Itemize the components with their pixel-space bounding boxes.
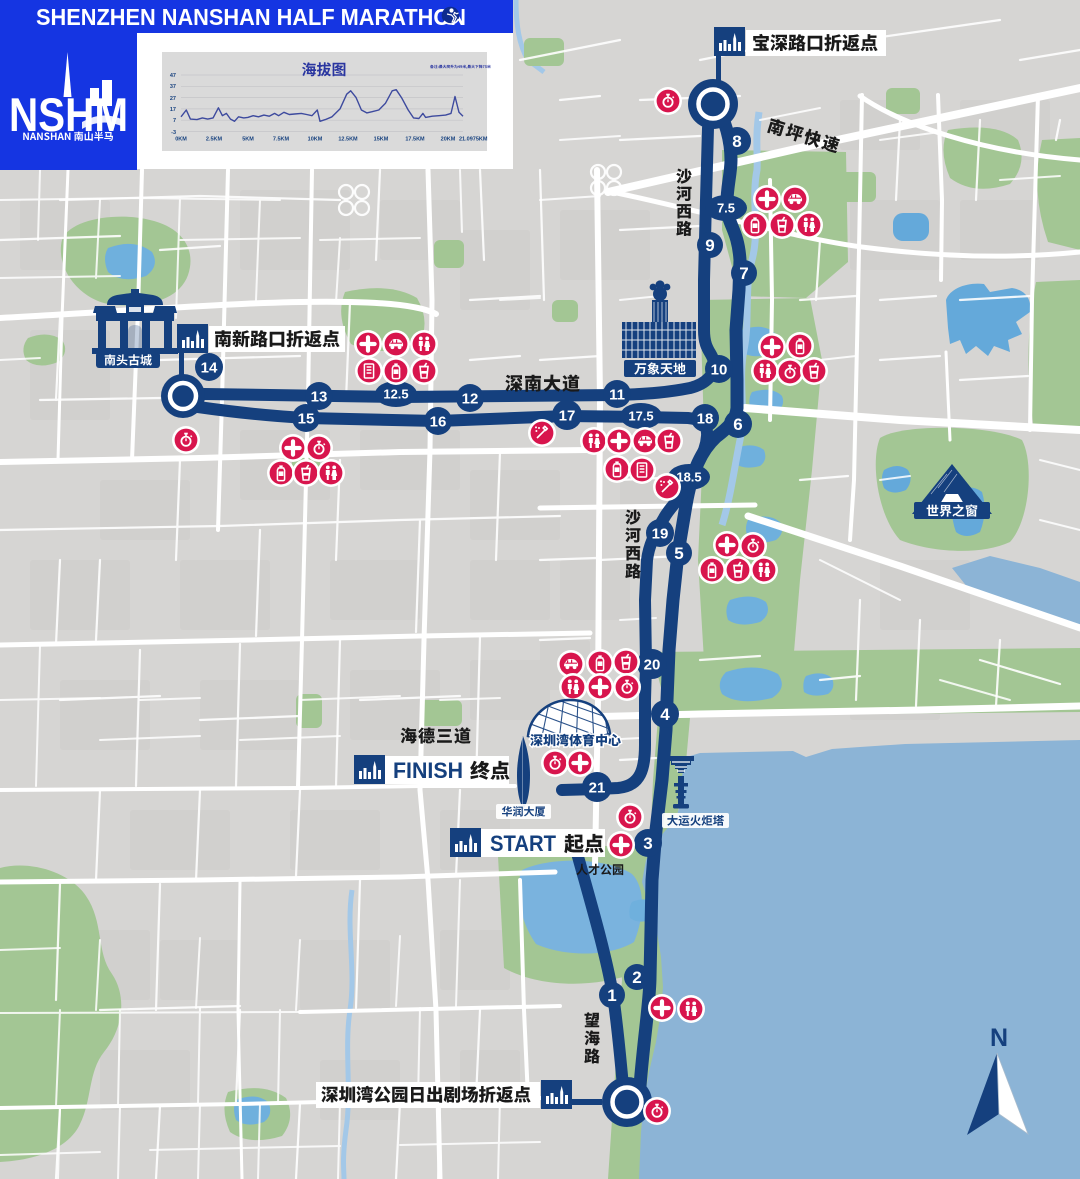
svg-text:20: 20 — [644, 656, 661, 673]
svg-text:17: 17 — [559, 407, 576, 424]
svg-text:13: 13 — [311, 388, 328, 405]
svg-text:11: 11 — [609, 386, 625, 403]
svg-text:21.0975KM: 21.0975KM — [459, 137, 488, 143]
svg-text:7.5: 7.5 — [717, 201, 735, 216]
svg-text:17: 17 — [170, 107, 176, 113]
svg-text:19: 19 — [652, 525, 669, 542]
svg-text:FINISH: FINISH — [393, 758, 463, 783]
svg-text:3: 3 — [643, 834, 652, 853]
svg-text:18: 18 — [697, 410, 714, 427]
svg-text:12.5KM: 12.5KM — [338, 137, 358, 143]
svg-text:10KM: 10KM — [308, 137, 323, 143]
svg-text:7.5KM: 7.5KM — [273, 137, 290, 143]
svg-text:START: START — [490, 831, 557, 856]
svg-text:17.5KM: 17.5KM — [405, 137, 425, 143]
svg-text:12.5: 12.5 — [383, 387, 408, 402]
svg-text:8: 8 — [732, 132, 741, 151]
svg-text:1: 1 — [607, 986, 616, 1005]
svg-text:0KM: 0KM — [175, 137, 187, 143]
svg-text:4: 4 — [660, 705, 670, 724]
svg-text:16: 16 — [430, 413, 447, 430]
svg-text:20KM: 20KM — [441, 137, 456, 143]
svg-text:7: 7 — [739, 264, 748, 283]
svg-text:N: N — [990, 1024, 1008, 1052]
svg-text:7: 7 — [173, 118, 176, 124]
svg-text:2.5KM: 2.5KM — [206, 137, 223, 143]
svg-text:9: 9 — [705, 236, 714, 255]
svg-text:SHENZHEN NANSHAN HALF MARATHON: SHENZHEN NANSHAN HALF MARATHON — [36, 4, 466, 30]
svg-text:6: 6 — [733, 415, 742, 434]
svg-text:5: 5 — [674, 544, 683, 563]
svg-text:21: 21 — [589, 779, 606, 796]
svg-text:15KM: 15KM — [374, 137, 389, 143]
svg-text:47: 47 — [170, 73, 176, 79]
svg-text:10: 10 — [711, 361, 728, 378]
svg-text:5KM: 5KM — [242, 137, 254, 143]
svg-text:17.5: 17.5 — [628, 409, 653, 424]
svg-text:37: 37 — [170, 84, 176, 90]
svg-text:2: 2 — [632, 968, 641, 987]
svg-text:-3: -3 — [171, 130, 176, 136]
svg-text:27: 27 — [170, 96, 176, 102]
svg-text:12: 12 — [462, 390, 479, 407]
svg-text:14: 14 — [201, 359, 218, 376]
svg-text:15: 15 — [298, 410, 315, 427]
